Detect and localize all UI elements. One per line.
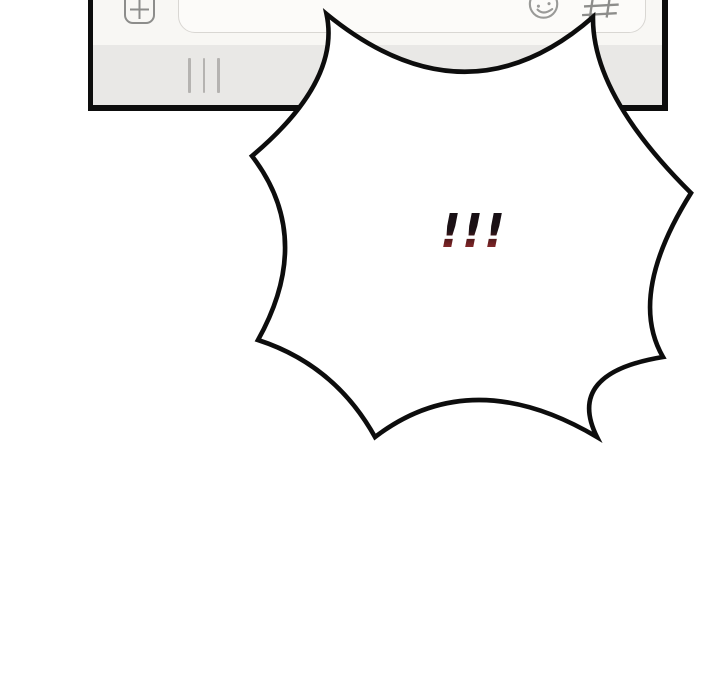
keyboard-area [93, 45, 662, 105]
burst-exclamation-text: !!! [440, 204, 506, 258]
emoji-icon[interactable] [530, 0, 557, 18]
message-composer [93, 0, 662, 45]
phone-chat-window [88, 0, 668, 111]
drag-handle-icon[interactable] [188, 58, 220, 93]
message-input[interactable] [178, 0, 646, 33]
attach-button[interactable] [124, 0, 155, 24]
plus-icon [126, 0, 153, 22]
comic-panel: !!! [0, 0, 720, 700]
hashtag-icon[interactable] [582, 0, 619, 18]
